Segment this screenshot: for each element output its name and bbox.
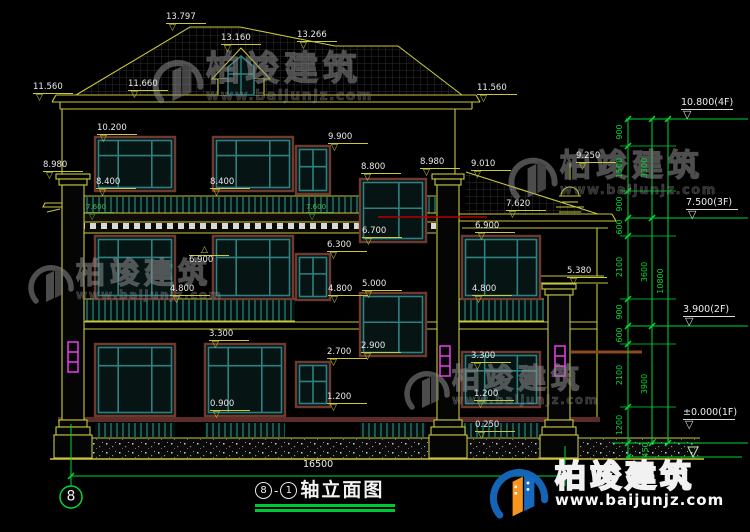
brand-url: www.baijunjz.com — [555, 491, 724, 509]
elevation-triangle-icon: △ — [201, 246, 229, 254]
vertical-dimension-value: 3600 — [641, 262, 649, 282]
vertical-dimension-value: 900 — [616, 304, 624, 319]
elevation-triangle-icon: ▽ — [423, 169, 460, 177]
elevation-triangle-icon: ▽ — [100, 135, 137, 143]
elevation-triangle-icon: ▽ — [212, 341, 249, 349]
elevation-flag: 13.266▽ — [297, 31, 337, 50]
level-triangle-icon: ▽ — [688, 210, 738, 220]
elevation-flag: △6.900 — [189, 246, 229, 265]
annotation-layer: 13.797▽13.160▽13.266▽11.560▽11.660▽11.56… — [0, 0, 750, 532]
elevation-triangle-icon: ▽ — [173, 296, 210, 304]
elevation-triangle-icon: ▽ — [99, 189, 136, 197]
vertical-dimension-value: 600 — [616, 219, 624, 234]
elevation-triangle-icon: ▽ — [46, 172, 83, 180]
elevation-triangle-icon: ▽ — [570, 278, 607, 286]
elevation-flag: 1.200▽ — [327, 393, 367, 412]
elevation-flag: 9.010▽ — [471, 160, 511, 179]
elevation-triangle-icon: ▽ — [365, 238, 402, 246]
elevation-triangle-icon: ▽ — [169, 24, 206, 32]
elevation-flag: 5.000▽ — [362, 280, 402, 299]
elevation-flag: 2.900▽ — [361, 342, 401, 361]
axis-bubble-label: 8 — [67, 489, 76, 505]
elevation-triangle-icon: ▽ — [365, 291, 402, 299]
elevation-triangle-icon: ▽ — [213, 411, 250, 419]
elevation-flag: 7.620▽ — [506, 200, 546, 219]
elevation-triangle-icon: ▽ — [224, 45, 261, 53]
elevation-flag: 13.160▽ — [221, 34, 261, 53]
elevation-flag: 8.400▽ — [96, 178, 136, 197]
title-underline-1 — [255, 504, 395, 507]
vertical-dimension-value: 1200 — [616, 415, 624, 435]
elevation-flag: 5.380▽ — [567, 267, 607, 286]
elevation-triangle-icon: ▽ — [477, 401, 514, 409]
elevation-triangle-icon: ▽ — [300, 42, 337, 50]
vertical-dimension-value: 450 — [642, 442, 650, 457]
vertical-dimension-value: 900 — [616, 196, 624, 211]
elevation-flag: 0.900▽ — [210, 400, 250, 419]
vertical-dimension-value: 900 — [616, 124, 624, 139]
elevation-flag: 3.300▽ — [471, 352, 511, 371]
elevation-flag: 11.660▽ — [128, 80, 168, 99]
vertical-dimension-value: 10800 — [657, 268, 665, 293]
elevation-flag: 4.800▽ — [170, 285, 210, 304]
vertical-dimension-value: 600 — [616, 327, 624, 342]
title-ref-circle-a: 8 — [255, 482, 272, 499]
elevation-triangle-icon: ▽ — [474, 171, 511, 179]
vertical-dimension-value: 3900 — [641, 374, 649, 394]
overall-width-dim: 16500 — [303, 459, 333, 470]
elevation-flag: 8.800▽ — [361, 163, 401, 182]
vertical-dimension-value: 1500 — [616, 158, 624, 178]
elevation-triangle-icon: ▽ — [131, 91, 168, 99]
elevation-flag: 11.560▽ — [477, 84, 517, 103]
drawing-title: 8 - 1 轴立面图 — [255, 481, 384, 500]
elevation-triangle-icon: ▽ — [478, 432, 515, 440]
title-underline-2 — [255, 509, 395, 512]
elevation-triangle-icon: ▽ — [475, 296, 512, 304]
elevation-triangle-icon: ▽ — [509, 211, 546, 219]
elevation-flag: 0.250▽ — [475, 421, 515, 440]
elevation-flag: 11.560▽ — [33, 83, 73, 102]
story-level-marker: 3.900(2F)▽ — [683, 305, 735, 327]
elevation-triangle-icon: ▽ — [330, 404, 367, 412]
cad-elevation-screenshot: 13.797▽13.160▽13.266▽11.560▽11.660▽11.56… — [0, 0, 750, 532]
story-level-marker: 10.800(4F)▽ — [681, 98, 733, 120]
brand-name: 柏竣建筑 — [555, 460, 724, 494]
vertical-dimension-value: 2100 — [616, 257, 624, 277]
elevation-flag: 13.797▽ — [166, 13, 206, 32]
elevation-flag: 10.200▽ — [97, 124, 137, 143]
elevation-flag: 9.250▽ — [576, 152, 616, 171]
elevation-triangle-icon: ▽ — [480, 95, 517, 103]
elevation-flag: 3.300▽ — [209, 330, 249, 349]
elevation-triangle-icon: ▽ — [89, 213, 114, 220]
vertical-dimension-value: 2100 — [616, 365, 624, 385]
story-level-marker: ±0.000(1F)▽ — [683, 408, 737, 430]
elevation-flag: 6.300▽ — [327, 241, 367, 260]
elevation-flag: 6.700▽ — [362, 227, 402, 246]
elevation-triangle-icon: ▽ — [474, 363, 511, 371]
elevation-flag: 7.600▽ — [86, 204, 114, 220]
title-text: 轴立面图 — [300, 481, 384, 500]
elevation-flag: 8.400▽ — [210, 178, 250, 197]
elevation-triangle-icon: ▽ — [36, 94, 73, 102]
elevation-triangle-icon: ▽ — [330, 252, 367, 260]
level-triangle-icon: ▽ — [685, 317, 735, 327]
elevation-triangle-icon: ▽ — [364, 174, 401, 182]
level-triangle-icon: ▽ — [683, 110, 733, 120]
vertical-dimension-value: 3300 — [641, 158, 649, 178]
elevation-flag: 4.800▽ — [472, 285, 512, 304]
title-ref-circle-b: 1 — [280, 482, 297, 499]
elevation-triangle-icon: ▽ — [309, 213, 334, 220]
elevation-flag: 8.980▽ — [43, 161, 83, 180]
elevation-triangle-icon: ▽ — [213, 189, 250, 197]
elevation-flag: 8.980▽ — [420, 158, 460, 177]
title-separator: - — [274, 485, 278, 497]
elevation-triangle-icon: ▽ — [579, 163, 616, 171]
story-level-marker: 7.500(3F)▽ — [686, 198, 738, 220]
level-triangle-icon: ▽ — [685, 420, 737, 430]
elevation-flag: 9.900▽ — [328, 133, 368, 152]
elevation-triangle-icon: ▽ — [331, 144, 368, 152]
elevation-flag: 1.200▽ — [474, 390, 514, 409]
elevation-triangle-icon: ▽ — [478, 233, 515, 241]
elevation-flag: 6.900▽ — [475, 222, 515, 241]
baijun-logo-icon — [487, 460, 551, 524]
elevation-triangle-icon: ▽ — [364, 353, 401, 361]
brand-logo: 柏竣建筑 www.baijunjz.com — [487, 460, 724, 524]
elevation-flag: 7.600▽ — [306, 204, 334, 220]
